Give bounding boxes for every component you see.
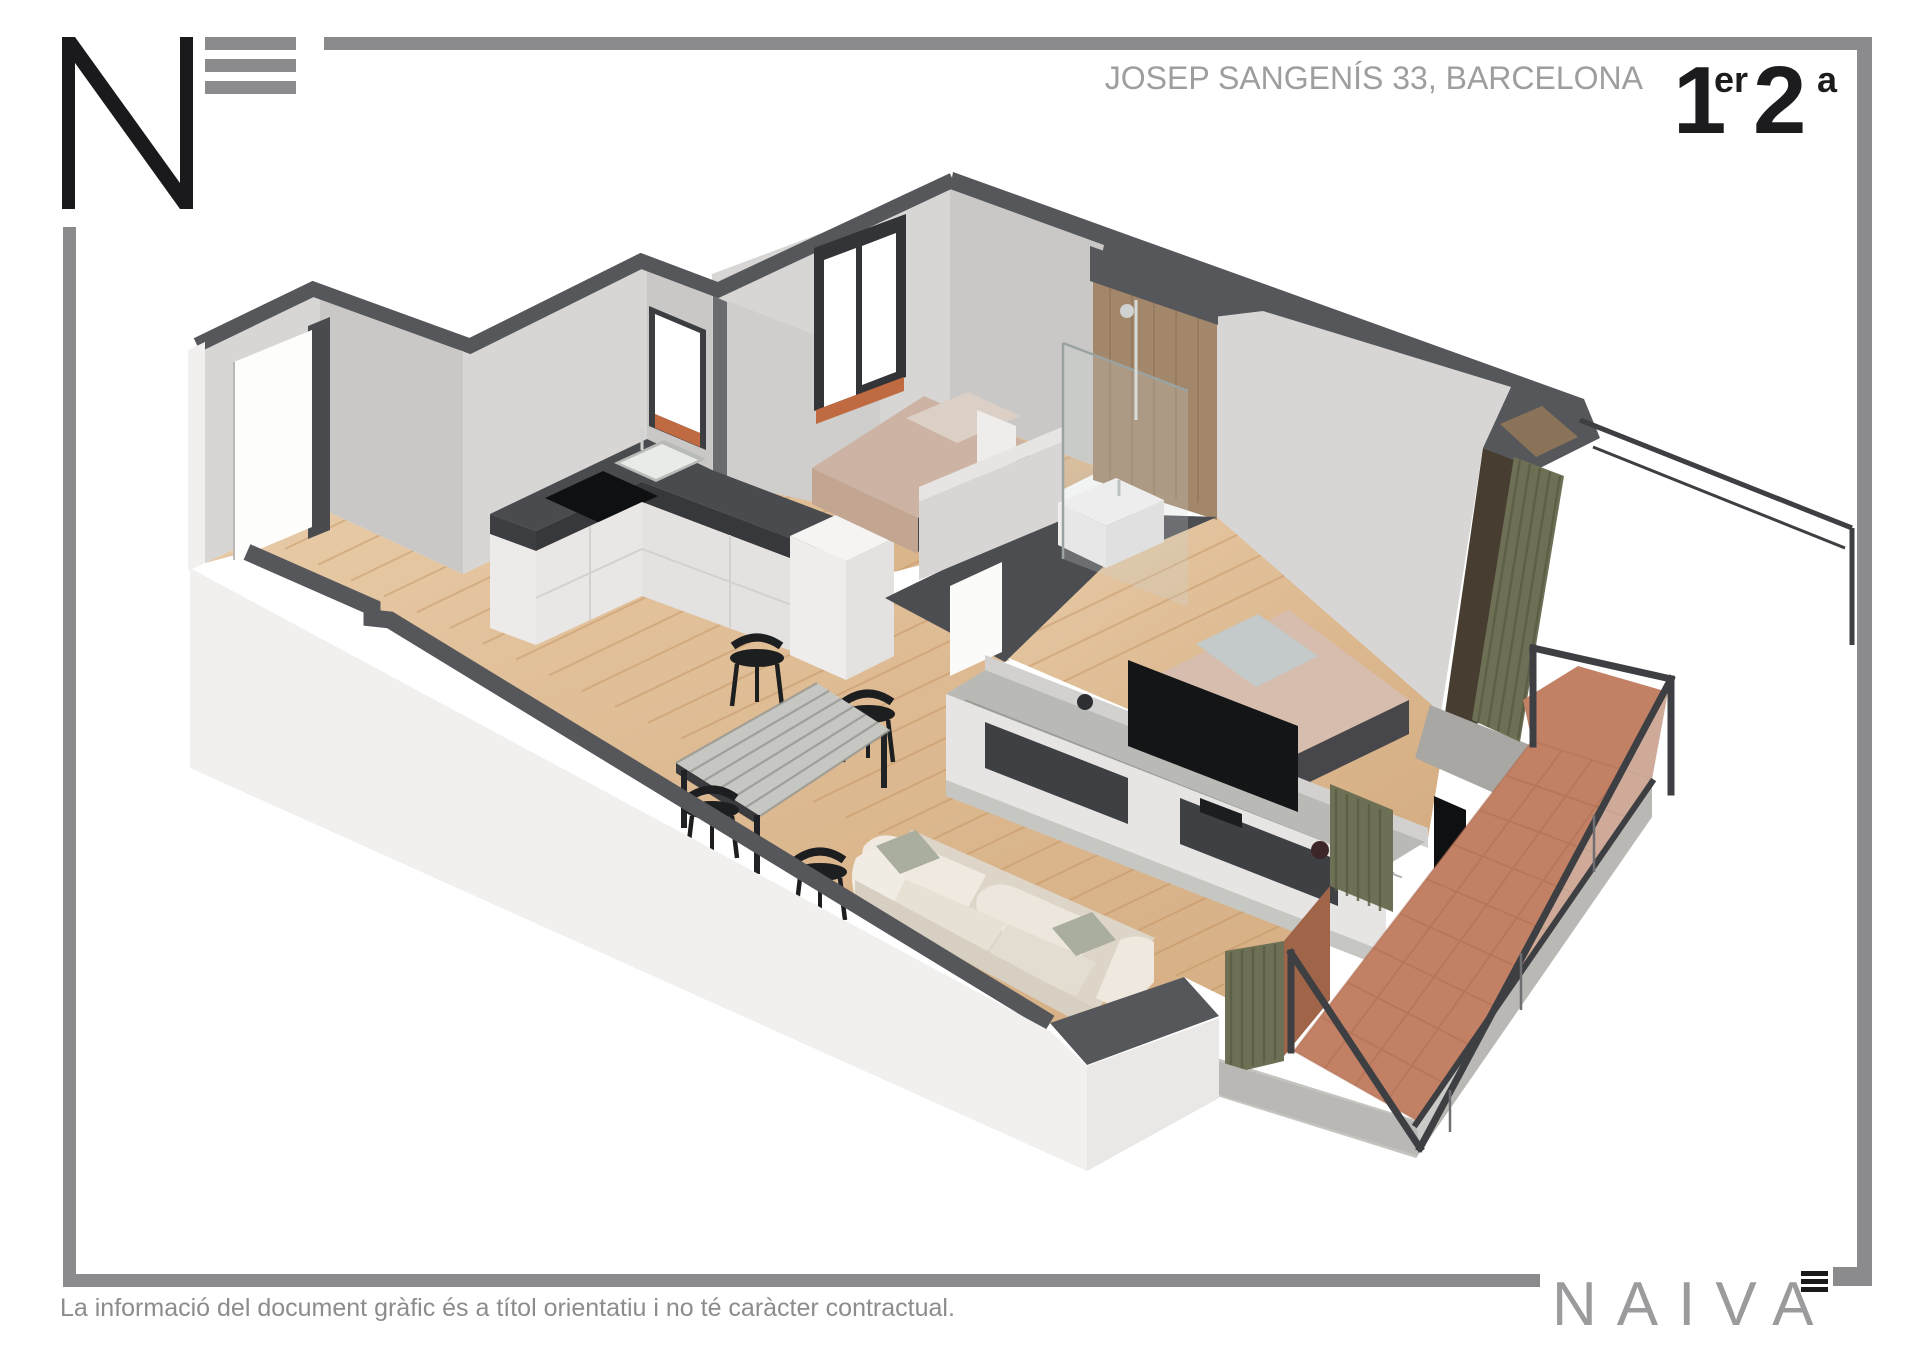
svg-text:2: 2 <box>1753 47 1806 154</box>
svg-text:La informació del document grà: La informació del document gràfic és a t… <box>60 1294 955 1322</box>
svg-text:a: a <box>1817 59 1838 100</box>
svg-text:er: er <box>1714 59 1748 100</box>
svg-text:JOSEP SANGENÍS 33, BARCELONA: JOSEP SANGENÍS 33, BARCELONA <box>1105 60 1644 96</box>
svg-text:NAIVA: NAIVA <box>1552 1270 1833 1339</box>
